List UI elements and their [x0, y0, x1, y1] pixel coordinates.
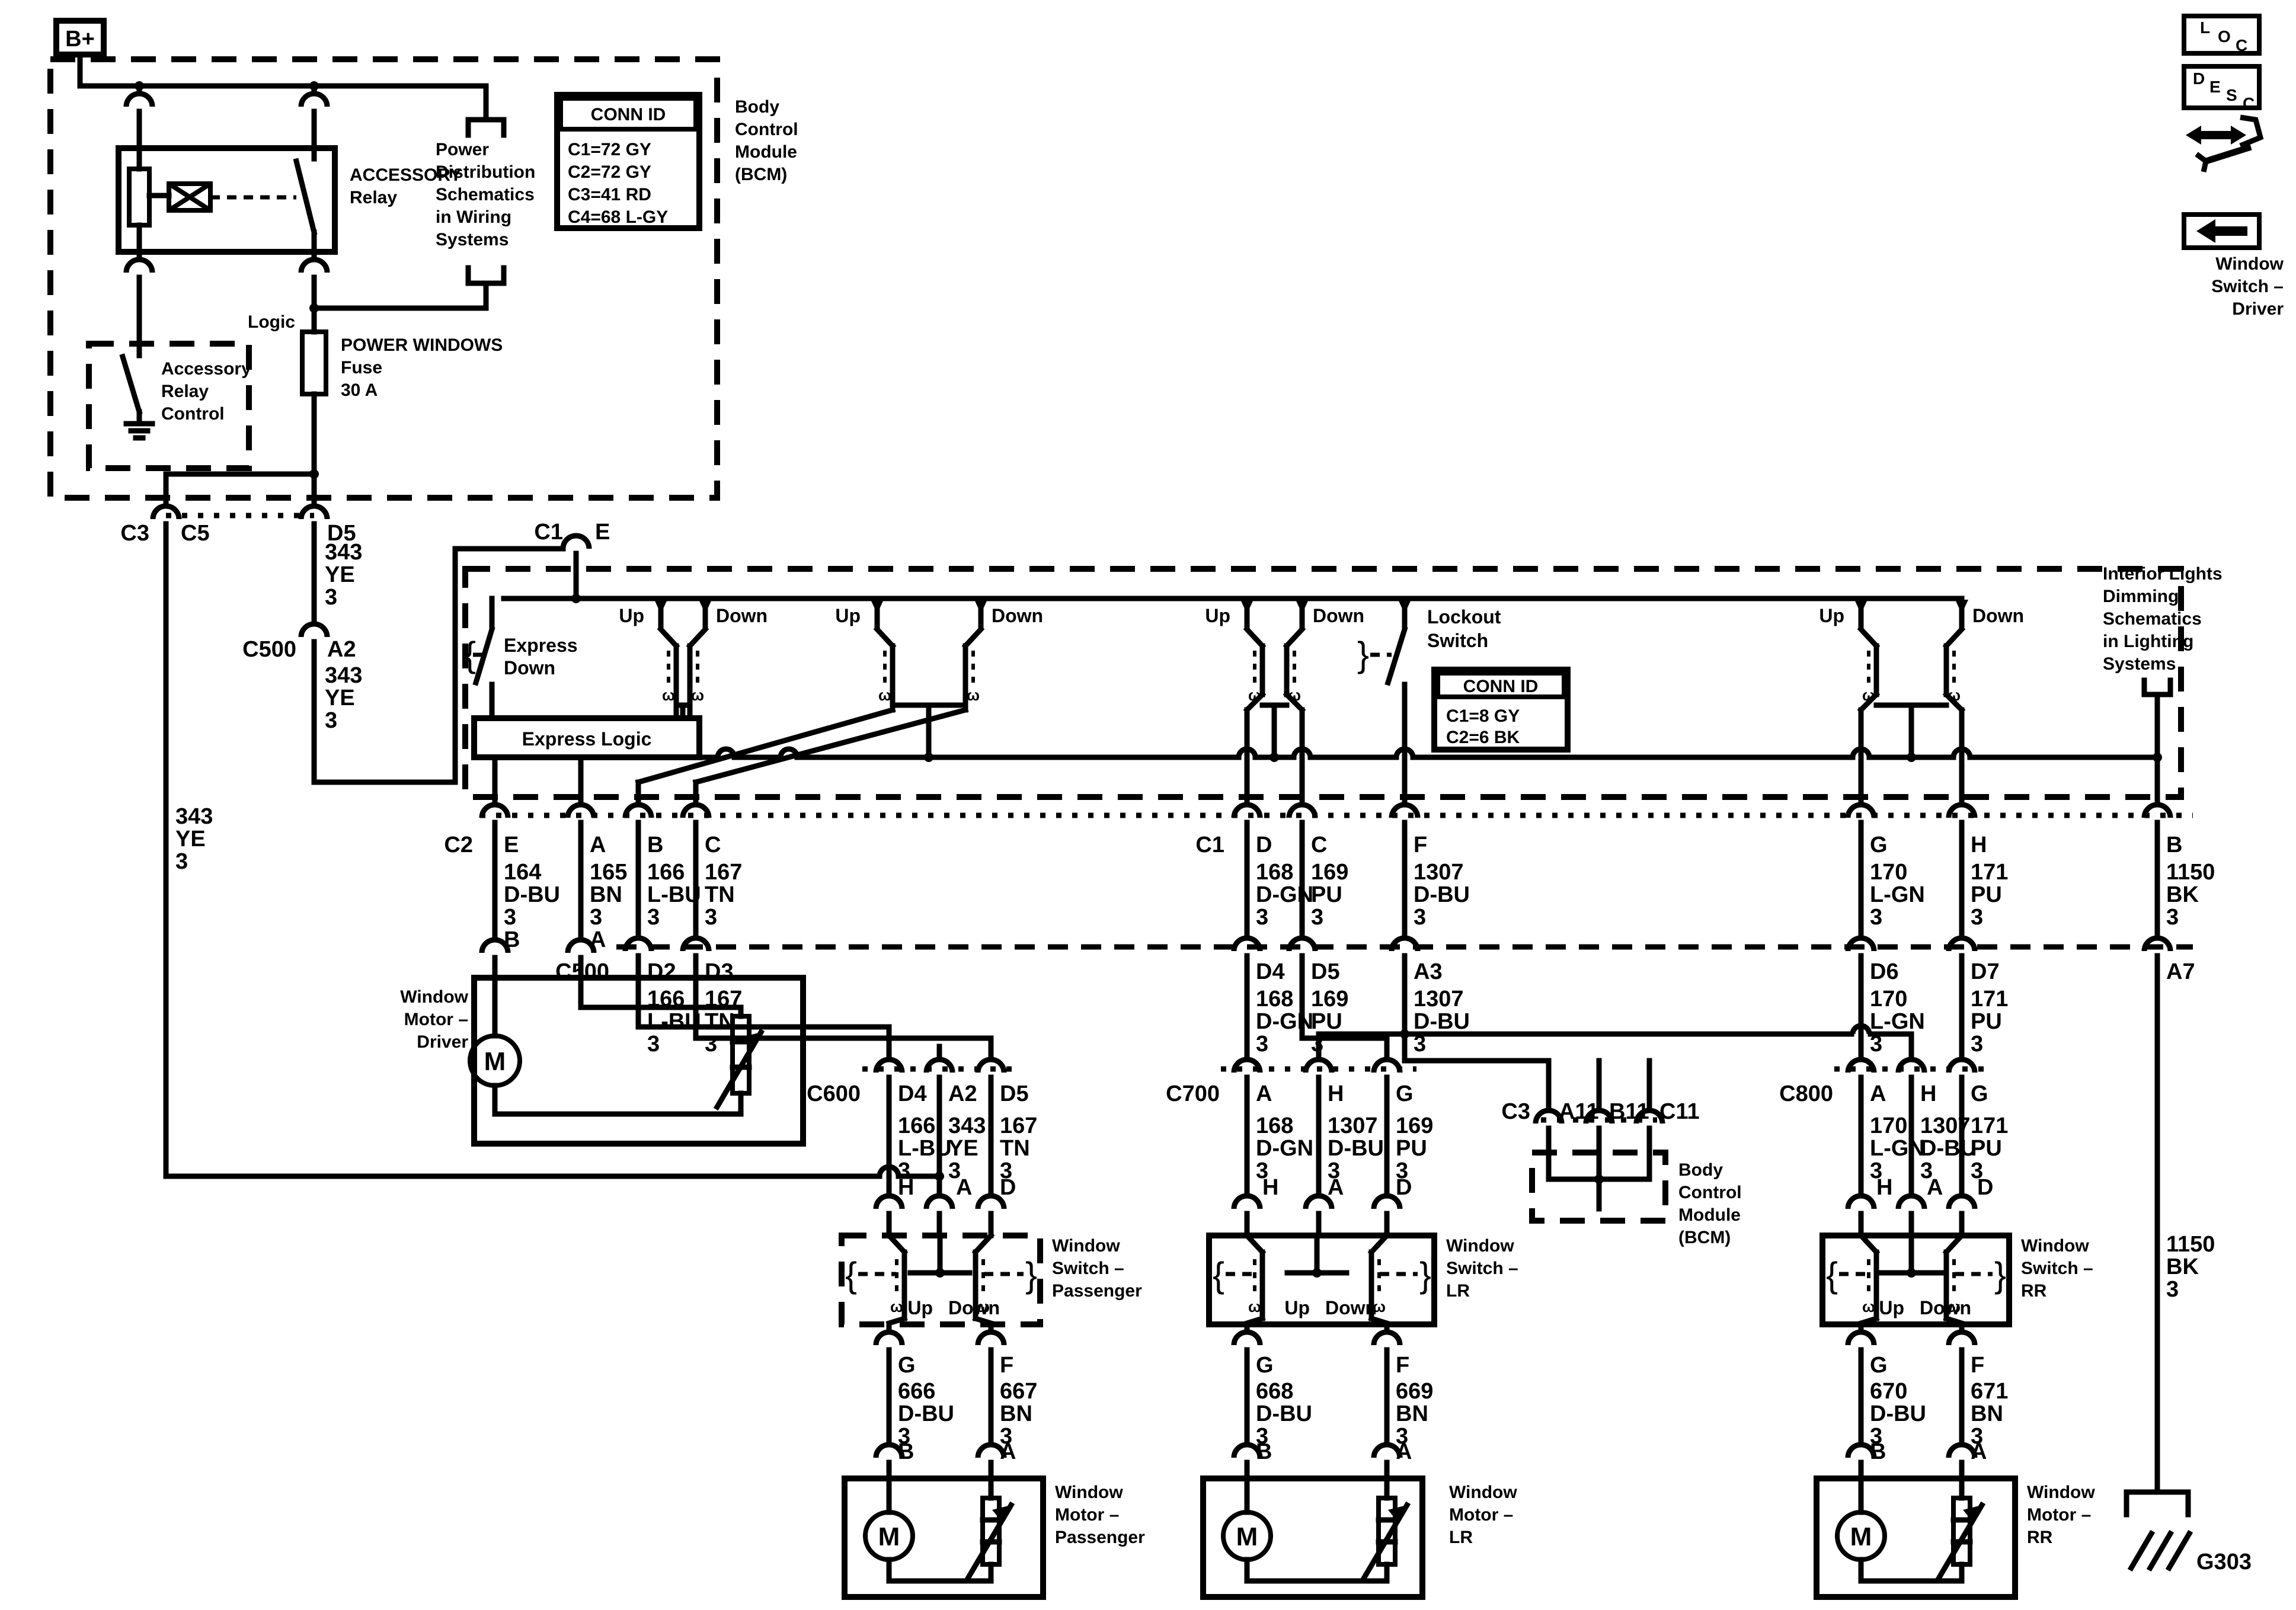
pin-label: D [1256, 833, 1272, 857]
brace-icon: } [1419, 1255, 1431, 1295]
connector-label-c700: C700 [1166, 1081, 1220, 1106]
back-arrow-icon [2196, 219, 2247, 243]
motor-title: Passenger [1055, 1528, 1145, 1547]
wire-label: D-GN [1256, 882, 1313, 907]
wire-label: PU [1396, 1136, 1427, 1161]
pin-label: A [1000, 1439, 1016, 1464]
wire-label: PU [1311, 882, 1342, 907]
contact-icon: ω [1248, 1298, 1261, 1315]
relay-control-label: Accessory [161, 359, 251, 379]
wire-label: 171 [1971, 860, 2008, 885]
contact-icon: ω [662, 686, 675, 704]
pin-label: C11 [1659, 1099, 1700, 1124]
motor-title: Window [1449, 1483, 1517, 1502]
mechanical-link-dashes [210, 197, 1993, 1274]
pin-label: B [2166, 833, 2182, 857]
wire-label: 167 [1000, 1113, 1037, 1138]
relay-resistor [129, 169, 149, 225]
wire-label: 167 [705, 987, 742, 1012]
wire-label: D-BU [1870, 1401, 1926, 1426]
motor-title: LR [1449, 1528, 1473, 1547]
desc-letter: C [2243, 94, 2255, 113]
power-dist-note: Distribution [436, 162, 535, 182]
desc-letter: E [2209, 78, 2221, 96]
wire-label: 170 [1870, 1113, 1907, 1138]
logic-label: Logic [248, 312, 295, 332]
pin-label: D5 [1000, 1081, 1029, 1106]
brace-icon: { [1826, 1255, 1838, 1295]
pin-label: E [595, 520, 610, 545]
pin-label: D7 [1971, 959, 2000, 984]
wire-label: PU [1971, 1136, 2002, 1161]
motor-title: Motor – [1055, 1505, 1119, 1525]
pin-label: A2 [948, 1081, 977, 1106]
pin-label: H [1328, 1081, 1344, 1106]
pin-label: C [705, 833, 721, 857]
wire-label: PU [1311, 1009, 1342, 1034]
pin-label: D2 [647, 959, 676, 984]
fuse-label: 30 A [341, 380, 378, 400]
express-logic-label: Express Logic [522, 728, 652, 750]
conn-id-row: C1=8 GY [1446, 706, 1520, 726]
pin-label: A [590, 833, 606, 857]
express-down-label: Express [504, 635, 578, 656]
bcm-label: Body [735, 97, 779, 117]
up-label: Up [907, 1297, 933, 1318]
contact-icon: ω [691, 686, 704, 704]
wire-label: 3 [1971, 1032, 1983, 1057]
pin-label: H [1920, 1081, 1936, 1106]
connector-label-c600: C600 [807, 1081, 861, 1106]
bcm-label: Control [1678, 1183, 1742, 1202]
wire-label: BK [2166, 882, 2199, 907]
conn-id-row: C2=6 BK [1446, 728, 1520, 747]
wire-label: 668 [1256, 1379, 1293, 1404]
switch-title: RR [2021, 1281, 2047, 1301]
schematic-canvas: B+ L O C D E S C Window Switch – Driver … [0, 0, 2296, 1610]
power-dist-note: Systems [436, 230, 509, 249]
wire-label: 169 [1311, 987, 1348, 1012]
switch-title: Switch – [2021, 1259, 2093, 1278]
wire-label: YE [325, 686, 355, 710]
wire-label: PU [1971, 882, 2002, 907]
motor-title: Motor – [404, 1010, 468, 1029]
brace-icon: } [1357, 635, 1369, 674]
wire-label: TN [705, 882, 735, 907]
contact-icon: ω [1373, 1298, 1386, 1315]
switch-title: Window [2021, 1236, 2089, 1256]
window-switch-lr-box [1209, 1235, 1434, 1324]
wire-label: 168 [1256, 860, 1293, 885]
pin-label: H [1876, 1175, 1892, 1200]
down-label: Down [992, 605, 1043, 626]
contact-icon: ω [1862, 686, 1875, 704]
contact-icon: ω [878, 686, 891, 704]
power-dist-note: in Wiring [436, 207, 511, 227]
pin-label: A7 [2166, 959, 2195, 984]
wire-label: 168 [1256, 987, 1293, 1012]
pin-label: A [956, 1175, 972, 1200]
brace-icon: { [464, 635, 476, 674]
wire-label: YE [175, 827, 206, 852]
pin-label: A2 [327, 637, 356, 662]
motor-m-label: M [1850, 1522, 1872, 1551]
down-label: Down [1972, 605, 2024, 626]
pin-label: E [504, 833, 519, 857]
contact-icon: ω [1248, 686, 1261, 704]
down-label: Down [948, 1297, 1000, 1318]
loc-letter: O [2218, 27, 2231, 46]
wire-label: L-GN [1870, 882, 1925, 907]
wire-label: D-BU [504, 882, 560, 907]
pin-label: A [1870, 1081, 1886, 1106]
junction-dots [135, 81, 2162, 1278]
wire-label: 168 [1256, 1113, 1293, 1138]
bcm-label: Module [735, 142, 797, 162]
wire-label: 671 [1971, 1379, 2008, 1404]
motor-m-label: M [484, 1047, 506, 1076]
power-dist-note: Power [436, 140, 489, 159]
wire-label: 3 [325, 708, 337, 733]
wire-label: 3 [1870, 1032, 1882, 1057]
wire-label: 3 [2166, 1277, 2179, 1302]
wire-label: TN [1000, 1136, 1030, 1161]
corner-title: Window [2215, 254, 2284, 274]
pin-label: A3 [1414, 959, 1443, 984]
wire-label: YE [325, 562, 355, 587]
pin-label: G [898, 1353, 916, 1378]
wire-label: 169 [1311, 860, 1348, 885]
interior-lights-note: Dimming [2103, 587, 2179, 606]
connector-label-c3: C3 [120, 521, 149, 546]
pin-label: B11 [1609, 1099, 1649, 1124]
schematic-jump-wrench-icon[interactable] [2186, 117, 2260, 172]
pin-label: D [1977, 1175, 1993, 1200]
wire-label: 343 [325, 663, 362, 688]
wire-label: 3 [705, 1032, 717, 1057]
window-switch-driver-box [465, 569, 2181, 797]
contact-icon: ω [1948, 686, 1961, 704]
wire-label: 3 [1311, 905, 1323, 930]
pin-label: B [898, 1439, 914, 1464]
pin-label: B [1870, 1439, 1886, 1464]
wire-label: 3 [1311, 1032, 1323, 1057]
pin-label: A [1927, 1175, 1943, 1200]
power-dist-note: Schematics [436, 185, 535, 204]
wire-label: 3 [1870, 905, 1882, 930]
switch-title: Switch – [1446, 1259, 1518, 1278]
corner-title: Driver [2232, 299, 2284, 319]
motor-title: RR [2027, 1528, 2053, 1547]
wire-label: BN [590, 882, 622, 907]
express-down-label: Down [504, 657, 555, 678]
wire-label: YE [948, 1136, 978, 1161]
pin-label: G [1971, 1081, 1988, 1106]
contact-icon: ω [1948, 1298, 1961, 1315]
wire-label: 170 [1870, 987, 1907, 1012]
accessory-relay-label: Relay [350, 188, 397, 207]
wire-label: TN [705, 1009, 735, 1034]
pin-label: C5 [181, 521, 210, 546]
up-label: Up [835, 605, 861, 626]
connector-arcs [126, 94, 2170, 1458]
connector-label-c800: C800 [1779, 1081, 1833, 1106]
wire-label: 343 [175, 804, 213, 829]
wire-label: 169 [1396, 1113, 1433, 1138]
connector-label-c2: C2 [444, 833, 473, 857]
pin-label: B [647, 833, 663, 857]
wire-label: 3 [504, 905, 516, 930]
interior-lights-note: Interior Lights [2103, 564, 2223, 584]
switch-title: Switch – [1052, 1259, 1124, 1278]
wire-label: 3 [647, 1032, 660, 1057]
fuse-label: POWER WINDOWS [341, 335, 503, 355]
wire-hop-arcs [718, 749, 1970, 1176]
pin-label: G [1870, 1353, 1888, 1378]
motor-title: Window [1055, 1483, 1123, 1502]
wire-label: 669 [1396, 1379, 1433, 1404]
wire-label: D-BU [1920, 1136, 1977, 1161]
pin-label: D [1396, 1175, 1412, 1200]
pin-label: A [590, 927, 606, 952]
pin-label: A11 [1559, 1099, 1599, 1124]
wire-label: 3 [705, 905, 717, 930]
wire-label: D-BU [1328, 1136, 1384, 1161]
wire-label: 171 [1971, 1113, 2008, 1138]
wire-label: L-BU [647, 882, 701, 907]
conn-id-row: C4=68 L-GY [568, 207, 668, 227]
contact-icon: ω [1288, 686, 1301, 704]
down-label: Down [1325, 1297, 1377, 1318]
pin-label: A [1971, 1439, 1987, 1464]
wire-label: 1307 [1328, 1113, 1378, 1138]
wire-label: 164 [504, 860, 541, 885]
switch-title: Window [1052, 1236, 1120, 1256]
bcm-label: (BCM) [735, 165, 787, 184]
contact-icon: ω [1862, 1298, 1875, 1315]
wire-label: 343 [948, 1113, 986, 1138]
connector-label-c1: C1 [534, 520, 563, 545]
pin-label: B [504, 927, 520, 952]
up-label: Up [1284, 1297, 1310, 1318]
wire-label: 3 [2166, 905, 2179, 930]
switch-title: Window [1446, 1236, 1514, 1256]
pin-label: F [1000, 1353, 1013, 1378]
wire-label: D-BU [1414, 882, 1470, 907]
motor-title: Driver [417, 1032, 468, 1052]
bcm-top-dashed-box [50, 59, 717, 498]
brace-icon: } [1994, 1255, 2006, 1295]
interior-lights-note: Schematics [2103, 609, 2202, 629]
up-label: Up [1205, 605, 1230, 626]
conn-id-title: CONN ID [591, 105, 666, 124]
bcm-label: Body [1678, 1160, 1723, 1180]
wire-label: 165 [590, 860, 627, 885]
wire-label: L-GN [1870, 1136, 1925, 1161]
interior-lights-note: in Lighting [2103, 632, 2193, 651]
up-label: Up [1879, 1297, 1904, 1318]
connector-label-c3: C3 [1501, 1099, 1530, 1124]
wire-label: 1150 [2166, 860, 2215, 885]
pin-label: D5 [1311, 959, 1340, 984]
brace-icon: { [845, 1255, 857, 1295]
bcm-label: (BCM) [1678, 1228, 1731, 1247]
pin-label: G [1396, 1081, 1414, 1106]
desc-letter: D [2193, 69, 2205, 88]
pin-label: H [898, 1175, 914, 1200]
wire-label: 166 [898, 1113, 935, 1138]
motor-m-label: M [878, 1522, 900, 1551]
wire-label: PU [1971, 1009, 2002, 1034]
wire-label: 1307 [1414, 860, 1464, 885]
connector-label-c500: C500 [555, 959, 609, 984]
motor-title: Motor – [2027, 1505, 2091, 1525]
wire-label: 3 [1414, 905, 1426, 930]
desc-letter: S [2226, 86, 2237, 104]
b-plus-label: B+ [65, 27, 95, 52]
wire-label: D-BU [1414, 1009, 1470, 1034]
down-label: Down [716, 605, 768, 626]
pin-label: A [1328, 1175, 1344, 1200]
up-label: Up [1819, 605, 1844, 626]
pin-label: H [1971, 833, 1987, 857]
contact-icon: ω [890, 1298, 903, 1315]
pin-label: F [1396, 1353, 1409, 1378]
wire-label: D-GN [1256, 1136, 1313, 1161]
pin-label: B [1256, 1439, 1272, 1464]
pin-label: F [1414, 833, 1427, 857]
wire-label: 3 [647, 905, 660, 930]
bcm-label: Control [735, 120, 798, 139]
pin-label: D6 [1870, 959, 1899, 984]
relay-coil-x [169, 184, 210, 210]
pin-label: D [1000, 1175, 1016, 1200]
wire-label: 3 [1256, 1032, 1268, 1057]
pin-label: C [1311, 833, 1327, 857]
power-windows-wiring-diagram: B+ L O C D E S C Window Switch – Driver … [0, 0, 2296, 1610]
interior-lights-note: Systems [2103, 654, 2176, 674]
conn-id-row: C3=41 RD [568, 185, 651, 204]
up-label: Up [619, 605, 644, 626]
wire-label: BK [2166, 1254, 2199, 1279]
conn-id-row: C2=72 GY [568, 162, 651, 182]
window-switch-rr-box [1822, 1235, 2009, 1324]
wire-label: 670 [1870, 1379, 1907, 1404]
down-label: Down [1313, 605, 1364, 626]
motor-title: Window [400, 987, 468, 1007]
relay-control-label: Control [161, 404, 225, 424]
switch-title: LR [1446, 1281, 1470, 1301]
wire-label: 666 [898, 1379, 935, 1404]
loc-letter: C [2236, 36, 2247, 55]
ground-label-g303: G303 [2196, 1550, 2252, 1574]
pin-label: A [1256, 1081, 1272, 1106]
pin-label: D4 [1256, 959, 1285, 984]
brace-icon: { [1213, 1255, 1224, 1295]
pin-label: D4 [898, 1081, 927, 1106]
bcm-label: Module [1678, 1205, 1741, 1225]
motor-title: Motor – [1449, 1505, 1513, 1525]
connector-label-c500: C500 [242, 637, 296, 662]
brace-icon: } [1025, 1255, 1037, 1295]
pin-label: D3 [705, 959, 734, 984]
conn-id-title: CONN ID [1463, 677, 1539, 696]
motor-m-label: M [1236, 1522, 1258, 1551]
connector-label-c1: C1 [1195, 833, 1224, 857]
wire-label: D-BU [1256, 1401, 1312, 1426]
wire-label: 3 [325, 585, 337, 610]
wire-label: 167 [705, 860, 742, 885]
switch-title: Passenger [1052, 1281, 1142, 1301]
wire-label: 3 [590, 905, 602, 930]
pin-label: G [1870, 833, 1888, 857]
pin-label: A [1396, 1439, 1412, 1464]
wire-label: D-GN [1256, 1009, 1313, 1034]
wire-label: D-BU [898, 1401, 954, 1426]
wire-label: 171 [1971, 987, 2008, 1012]
loc-letter: L [2200, 18, 2210, 37]
wire-label: 3 [1256, 905, 1268, 930]
relay-control-label: Relay [161, 382, 209, 401]
wire-label: 343 [325, 540, 362, 565]
fuse-symbol [302, 332, 326, 394]
wire-label: BN [1396, 1401, 1428, 1426]
conn-id-row: C1=72 GY [568, 140, 651, 159]
wire-label: BN [1971, 1401, 2003, 1426]
wire-label: 1307 [1920, 1113, 1971, 1138]
contact-icon: ω [967, 686, 980, 704]
pin-label: F [1971, 1353, 1984, 1378]
wire-label: 1150 [2166, 1232, 2215, 1257]
pin-label: G [1256, 1353, 1274, 1378]
wire-label: 1307 [1414, 987, 1464, 1012]
wire-label: 166 [647, 860, 685, 885]
wire-label: L-GN [1870, 1009, 1925, 1034]
wire-label: 170 [1870, 860, 1907, 885]
motor-title: Window [2027, 1483, 2095, 1502]
wire-label: L-BU [898, 1136, 952, 1161]
wire-label: BN [1000, 1401, 1032, 1426]
lockout-label: Switch [1427, 630, 1488, 651]
wire-label: 3 [1971, 905, 1983, 930]
pin-label: H [1262, 1175, 1278, 1200]
wire-label: L-BU [647, 1009, 701, 1034]
lockout-label: Lockout [1427, 606, 1501, 628]
wire-label: 3 [175, 849, 188, 874]
fuse-label: Fuse [341, 358, 382, 377]
wire-label: 667 [1000, 1379, 1037, 1404]
down-label: Down [1920, 1297, 1971, 1318]
corner-title: Switch – [2211, 277, 2284, 296]
contact-icon: ω [977, 1298, 990, 1315]
wire-label: 3 [1414, 1032, 1426, 1057]
wire-label: 166 [647, 987, 685, 1012]
